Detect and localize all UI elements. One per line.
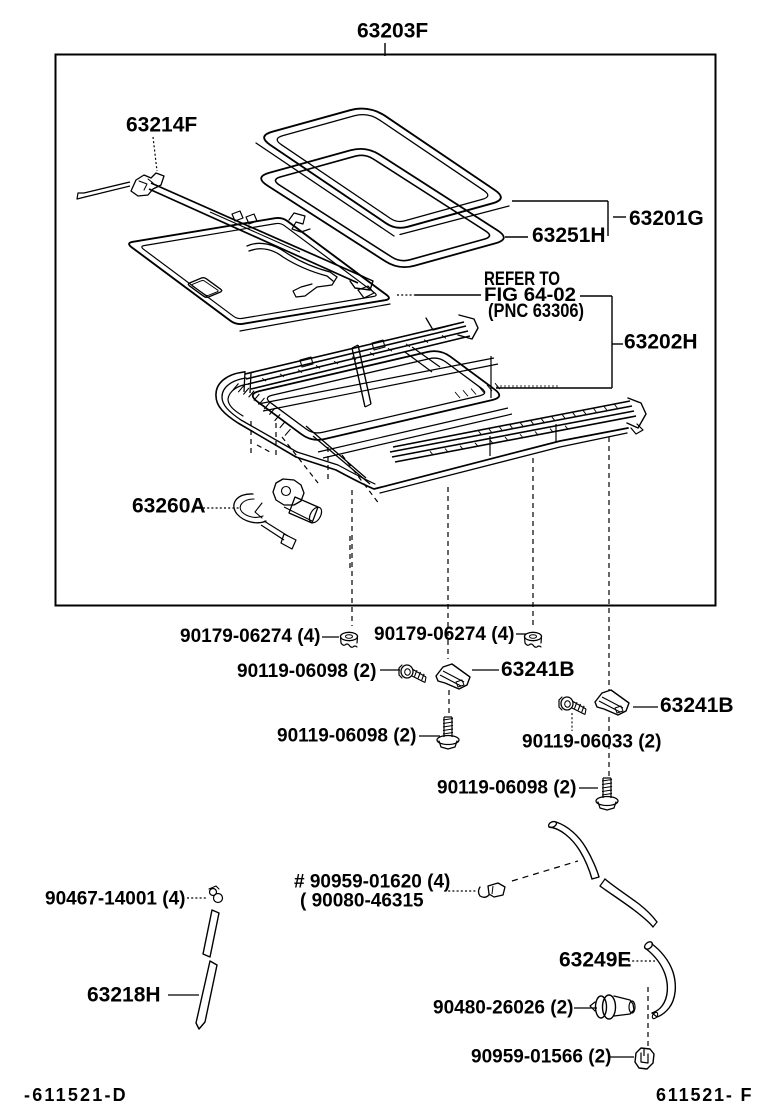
svg-text:90179-06274 (4): 90179-06274 (4) [374, 624, 515, 645]
svg-text:63260A: 63260A [132, 495, 206, 518]
svg-text:( 90080-46315: ( 90080-46315 [300, 891, 424, 912]
svg-text:611521- F: 611521- F [656, 1085, 753, 1105]
svg-text:(PNC 63306): (PNC 63306) [488, 301, 584, 322]
svg-text:63218H: 63218H [87, 984, 161, 1007]
svg-text:63202H: 63202H [624, 331, 698, 354]
svg-text:63241B: 63241B [501, 658, 575, 681]
svg-text:63241B: 63241B [660, 694, 734, 717]
svg-text:63201G: 63201G [629, 207, 704, 230]
svg-text:63249E: 63249E [559, 949, 631, 972]
svg-text:90119-06098 (2): 90119-06098 (2) [277, 726, 416, 747]
svg-text:90119-06098 (2): 90119-06098 (2) [237, 661, 376, 682]
svg-text:63251H: 63251H [532, 224, 606, 247]
svg-text:90119-06033 (2): 90119-06033 (2) [522, 732, 661, 753]
svg-text:# 90959-01620 (4): # 90959-01620 (4) [294, 872, 450, 893]
svg-text:63214F: 63214F [126, 114, 197, 137]
svg-text:90480-26026 (2): 90480-26026 (2) [433, 998, 574, 1019]
svg-text:90179-06274 (4): 90179-06274 (4) [180, 626, 321, 647]
svg-text:-611521-D: -611521-D [24, 1085, 128, 1105]
svg-text:90959-01566 (2): 90959-01566 (2) [471, 1047, 612, 1068]
svg-text:90467-14001 (4): 90467-14001 (4) [45, 889, 186, 910]
svg-text:90119-06098 (2): 90119-06098 (2) [437, 778, 576, 799]
svg-text:63203F: 63203F [357, 20, 428, 43]
